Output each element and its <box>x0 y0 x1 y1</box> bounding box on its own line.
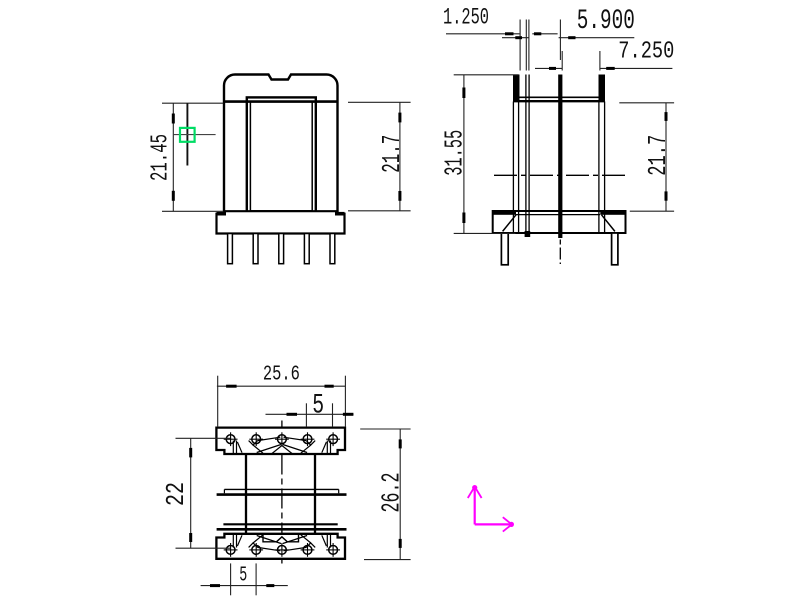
svg-text:21.7: 21.7 <box>643 135 673 176</box>
svg-text:5: 5 <box>312 391 324 422</box>
svg-text:1.250: 1.250 <box>443 5 489 32</box>
svg-text:21.7: 21.7 <box>377 135 407 173</box>
svg-text:7.250: 7.250 <box>618 39 674 66</box>
svg-text:21.45: 21.45 <box>148 134 175 181</box>
svg-text:5.900: 5.900 <box>577 6 635 37</box>
svg-text:5: 5 <box>239 564 247 588</box>
svg-text:26.2: 26.2 <box>376 473 406 513</box>
svg-text:31.55: 31.55 <box>440 130 470 176</box>
svg-text:25.6: 25.6 <box>263 363 300 387</box>
svg-text:22: 22 <box>161 482 191 506</box>
